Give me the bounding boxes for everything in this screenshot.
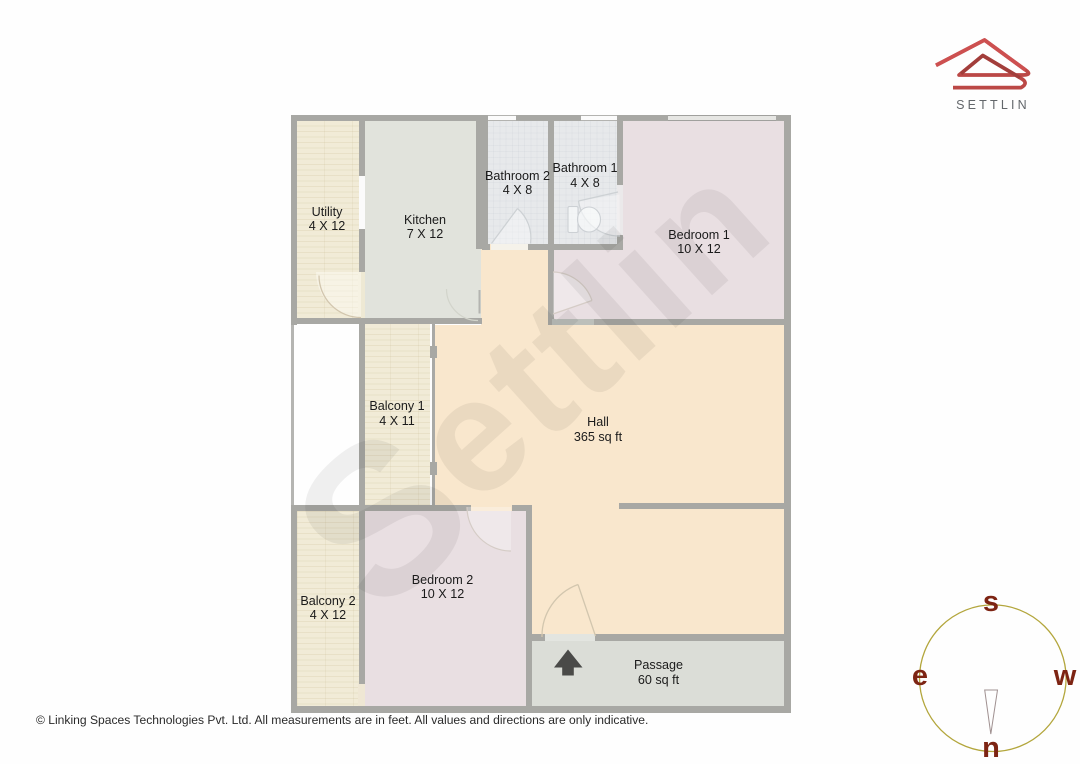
svg-text:w: w (1053, 660, 1077, 692)
svg-text:n: n (982, 732, 1000, 764)
svg-text:e: e (912, 660, 928, 692)
svg-text:SETTLIN: SETTLIN (956, 98, 1030, 112)
svg-text:s: s (983, 586, 999, 618)
